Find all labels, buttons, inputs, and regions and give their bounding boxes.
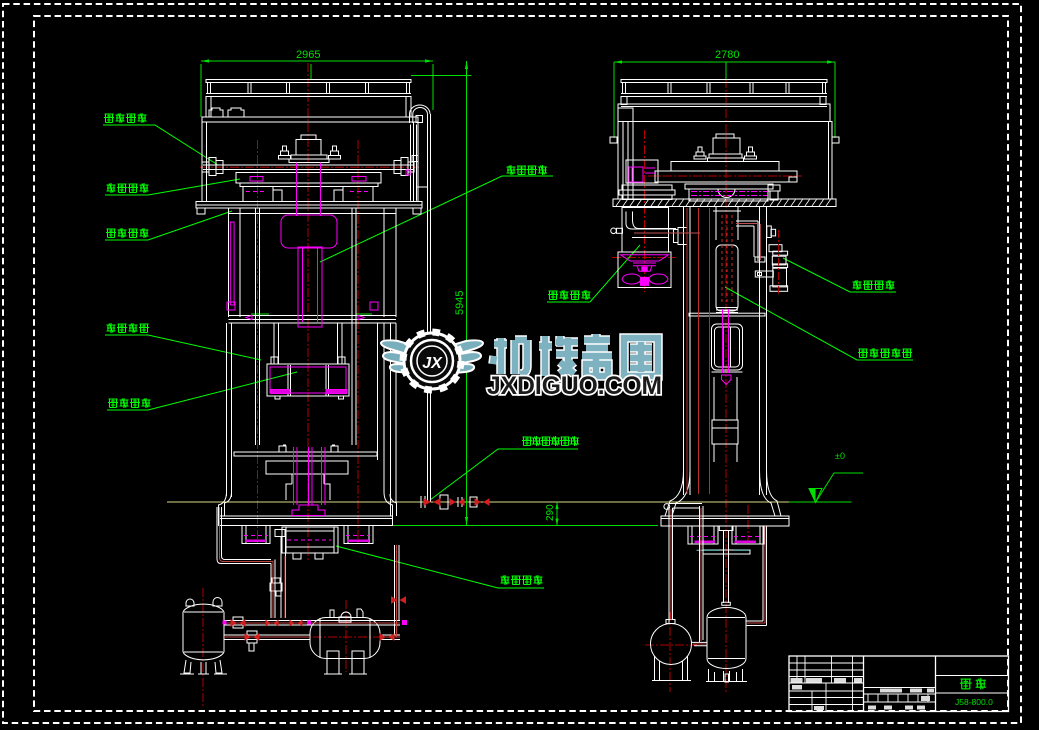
svg-text:JXDIGUO.COM: JXDIGUO.COM xyxy=(487,372,662,400)
svg-text:2965: 2965 xyxy=(296,49,320,61)
svg-text:2780: 2780 xyxy=(715,49,739,61)
svg-text:JX: JX xyxy=(422,355,443,372)
svg-text:5945: 5945 xyxy=(454,291,466,315)
svg-text:290: 290 xyxy=(545,504,556,521)
svg-text:J58-800.0: J58-800.0 xyxy=(955,697,993,707)
svg-text:±0: ±0 xyxy=(835,451,845,461)
